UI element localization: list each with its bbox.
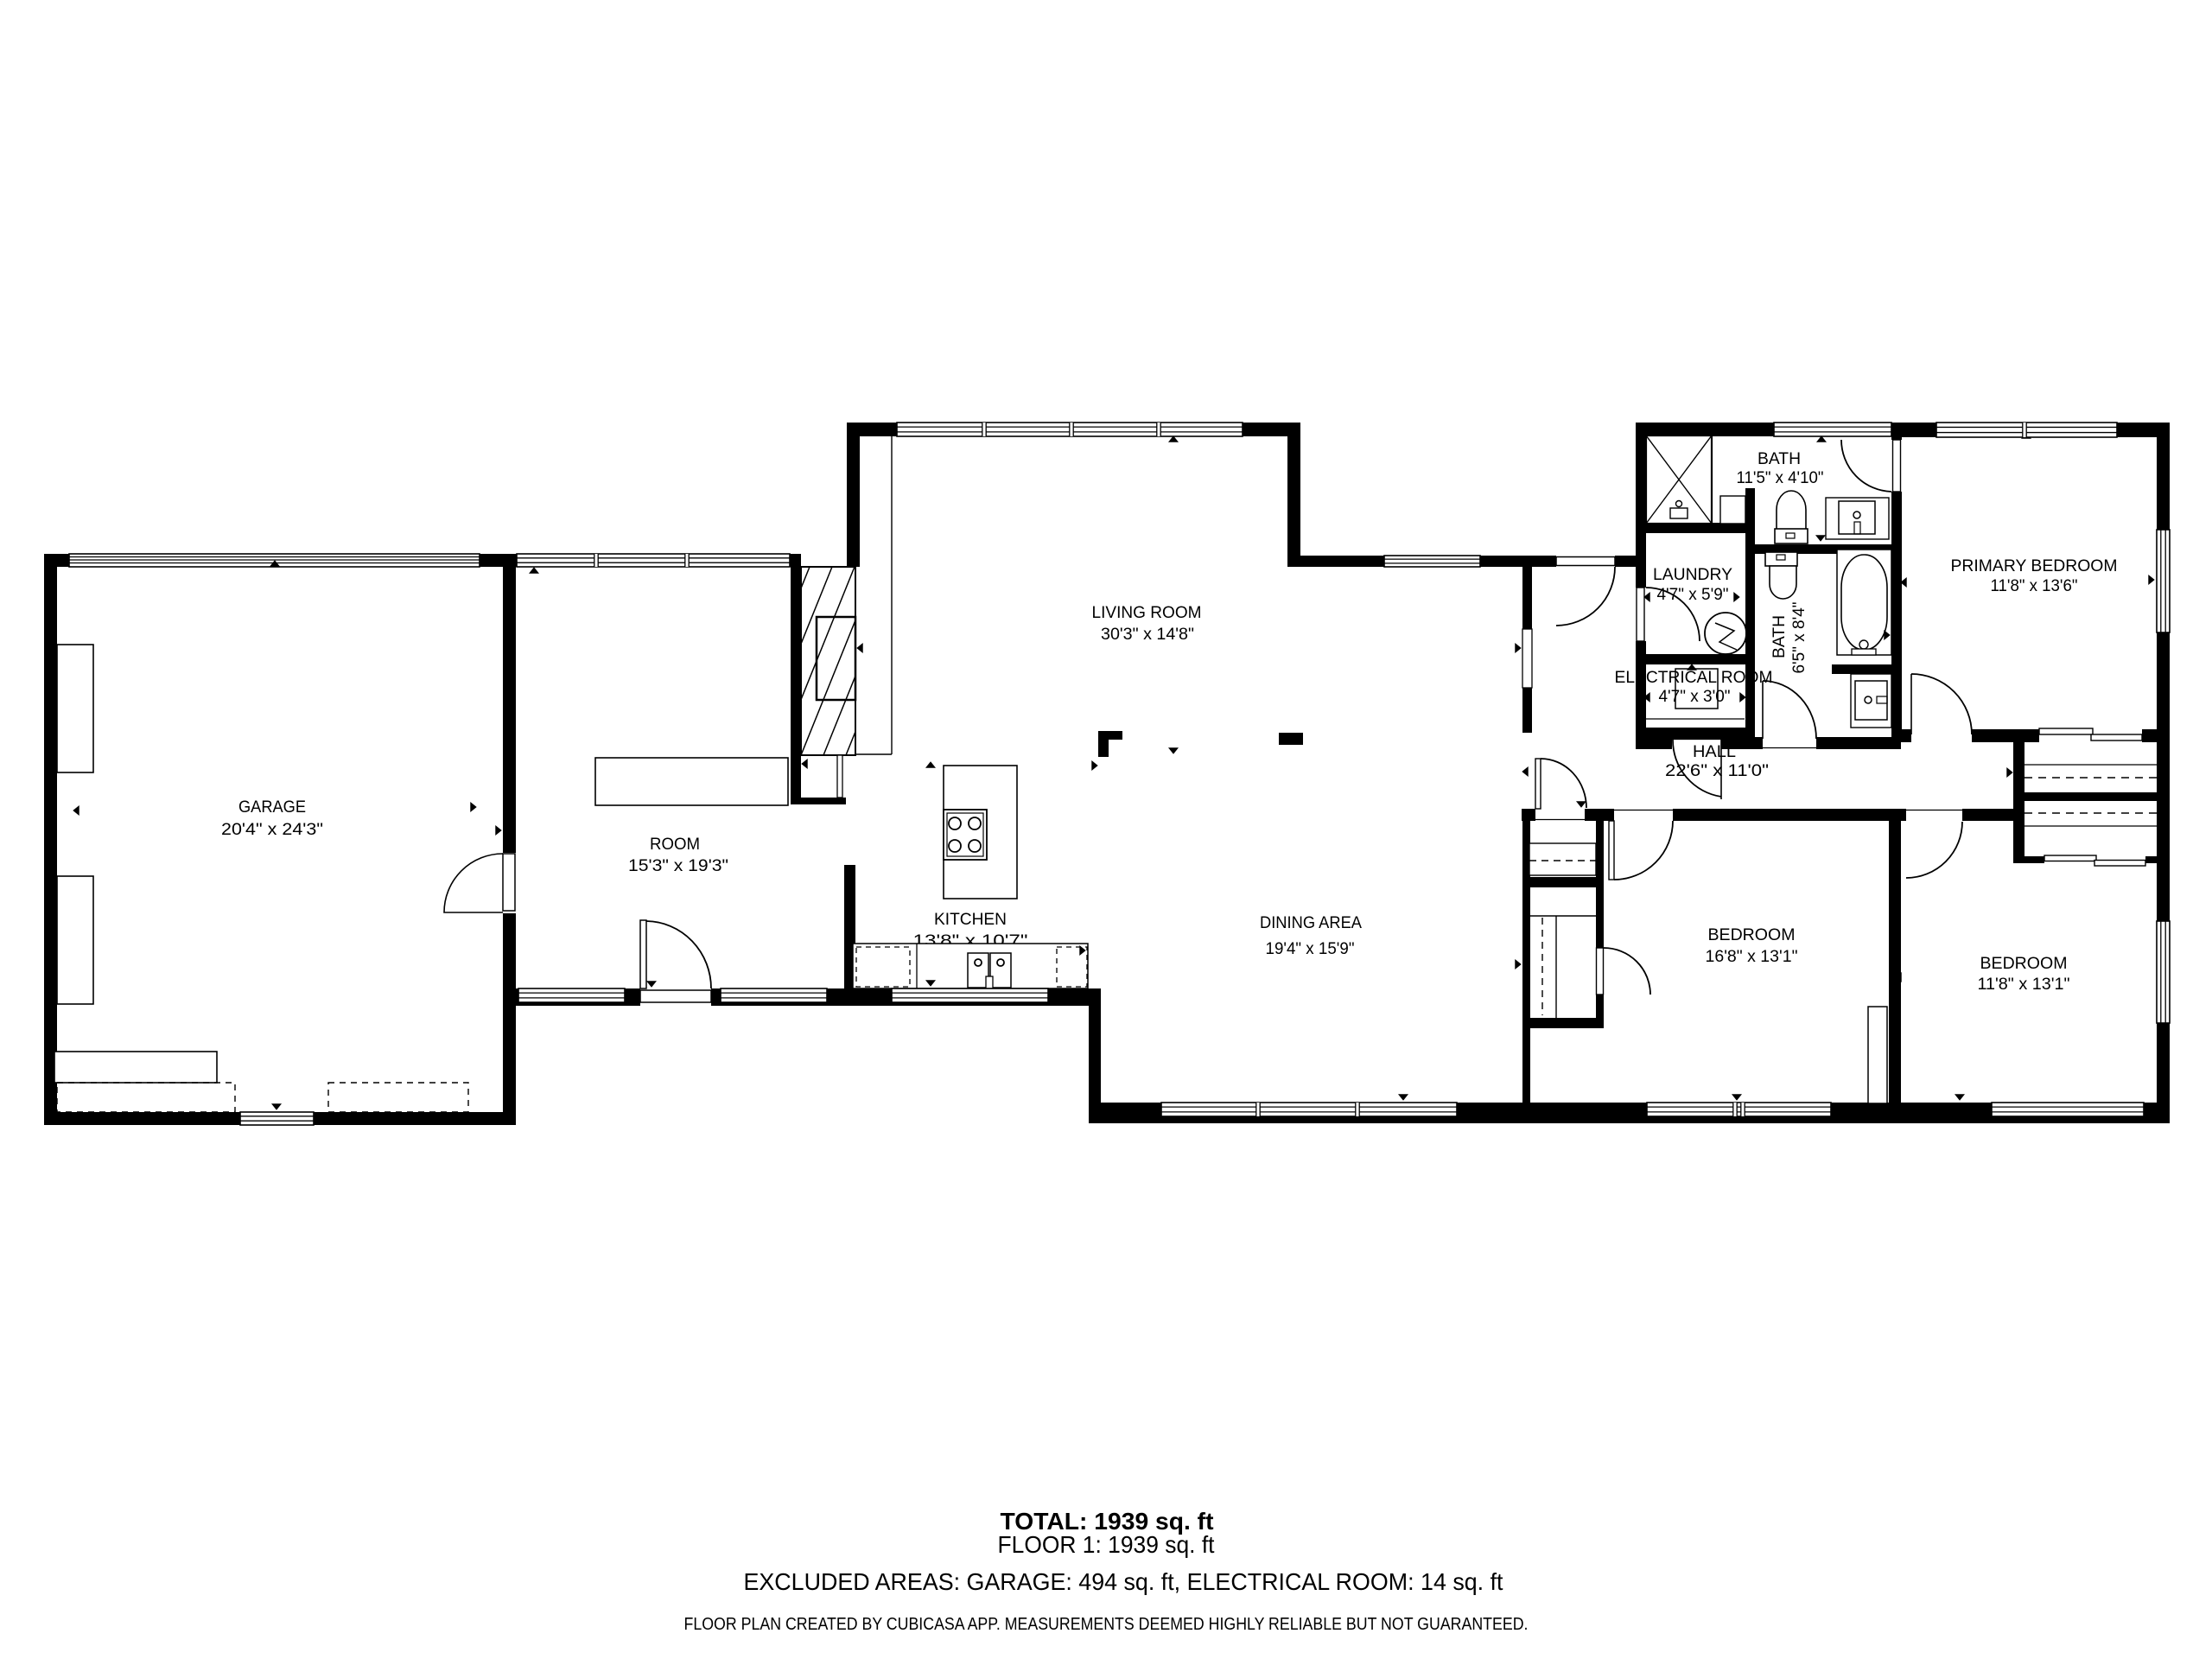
svg-text:EXCLUDED AREAS: GARAGE: 494 sq: EXCLUDED AREAS: GARAGE: 494 sq. ft, ELEC… (744, 1568, 1503, 1595)
svg-text:BATH: BATH (1758, 450, 1801, 468)
svg-text:HALL: HALL (1693, 743, 1736, 761)
svg-text:ELECTRICAL ROOM: ELECTRICAL ROOM (1615, 669, 1773, 687)
svg-text:22'6" x 11'0": 22'6" x 11'0" (1665, 762, 1769, 780)
svg-text:LAUNDRY: LAUNDRY (1653, 566, 1732, 584)
svg-text:BEDROOM: BEDROOM (1980, 955, 2068, 973)
svg-text:PRIMARY BEDROOM: PRIMARY BEDROOM (1951, 557, 2118, 575)
svg-text:FLOOR 1: 1939 sq. ft: FLOOR 1: 1939 sq. ft (998, 1531, 1215, 1558)
svg-text:16'8" x 13'1": 16'8" x 13'1" (1706, 948, 1798, 966)
svg-text:19'4" x 15'9": 19'4" x 15'9" (1266, 940, 1355, 958)
svg-text:LIVING ROOM: LIVING ROOM (1092, 604, 1202, 622)
svg-text:20'4" x 24'3": 20'4" x 24'3" (221, 821, 323, 839)
svg-text:ROOM: ROOM (650, 836, 700, 854)
svg-text:BEDROOM: BEDROOM (1708, 926, 1796, 944)
svg-text:4'7" x 5'9": 4'7" x 5'9" (1657, 586, 1729, 604)
svg-text:4'7" x 3'0": 4'7" x 3'0" (1659, 688, 1731, 706)
svg-text:KITCHEN: KITCHEN (934, 911, 1007, 929)
svg-text:30'3" x 14'8": 30'3" x 14'8" (1101, 626, 1194, 644)
svg-text:DINING AREA: DINING AREA (1260, 914, 1362, 932)
svg-text:BATH: BATH (1770, 615, 1789, 658)
svg-text:11'8" x 13'6": 11'8" x 13'6" (1991, 577, 2078, 595)
svg-text:FLOOR PLAN CREATED BY CUBICASA: FLOOR PLAN CREATED BY CUBICASA APP. MEAS… (684, 1615, 1529, 1634)
svg-text:11'8" x 13'1": 11'8" x 13'1" (1978, 976, 2070, 994)
svg-text:11'5" x 4'10": 11'5" x 4'10" (1737, 469, 1824, 487)
svg-text:GARAGE: GARAGE (238, 798, 306, 817)
svg-text:6'5" x 8'4": 6'5" x 8'4" (1790, 602, 1808, 674)
svg-text:15'3" x 19'3": 15'3" x 19'3" (628, 857, 728, 875)
